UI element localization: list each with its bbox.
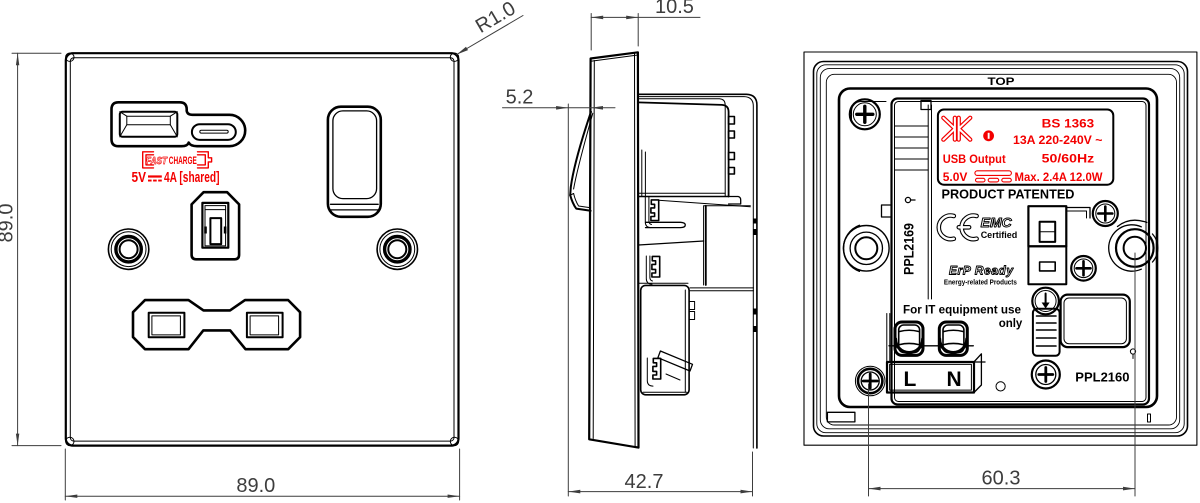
svg-text:42.7: 42.7 (625, 471, 664, 493)
svg-text:PRODUCT PATENTED: PRODUCT PATENTED (942, 186, 1075, 201)
svg-text:N: N (947, 368, 962, 391)
svg-text:Max. 2.4A 12.0W: Max. 2.4A 12.0W (1015, 170, 1104, 184)
svg-text:BS 1363: BS 1363 (1042, 116, 1095, 130)
svg-text:CHARGE: CHARGE (169, 155, 197, 167)
svg-text:60.3: 60.3 (982, 468, 1021, 490)
svg-text:USB Output: USB Output (943, 152, 1006, 166)
svg-text:Certified: Certified (981, 230, 1018, 240)
svg-text:5.0V: 5.0V (943, 170, 968, 184)
svg-text:Energy-related Products: Energy-related Products (944, 279, 1017, 286)
svg-text:TOP: TOP (988, 76, 1015, 88)
svg-text:EMC: EMC (981, 215, 1013, 230)
svg-text:L: L (904, 368, 917, 391)
svg-text:89.0: 89.0 (0, 204, 18, 243)
svg-text:PPL2169: PPL2169 (901, 223, 917, 275)
svg-text:For IT equipment use: For IT equipment use (903, 305, 1021, 317)
svg-text:FAST: FAST (146, 156, 168, 167)
svg-text:only: only (999, 318, 1023, 330)
svg-text:10.5: 10.5 (655, 0, 694, 18)
svg-text:5V: 5V (132, 170, 147, 186)
svg-text:5.2: 5.2 (506, 87, 534, 109)
svg-text:50/60Hz: 50/60Hz (1042, 152, 1095, 166)
svg-text:89.0: 89.0 (236, 475, 275, 497)
svg-text:4A [shared]: 4A [shared] (164, 170, 220, 186)
svg-text:PPL2160: PPL2160 (1075, 370, 1129, 385)
svg-text:ErP Ready: ErP Ready (949, 264, 1014, 278)
svg-text:13A 220-240V ~: 13A 220-240V ~ (1013, 133, 1103, 147)
